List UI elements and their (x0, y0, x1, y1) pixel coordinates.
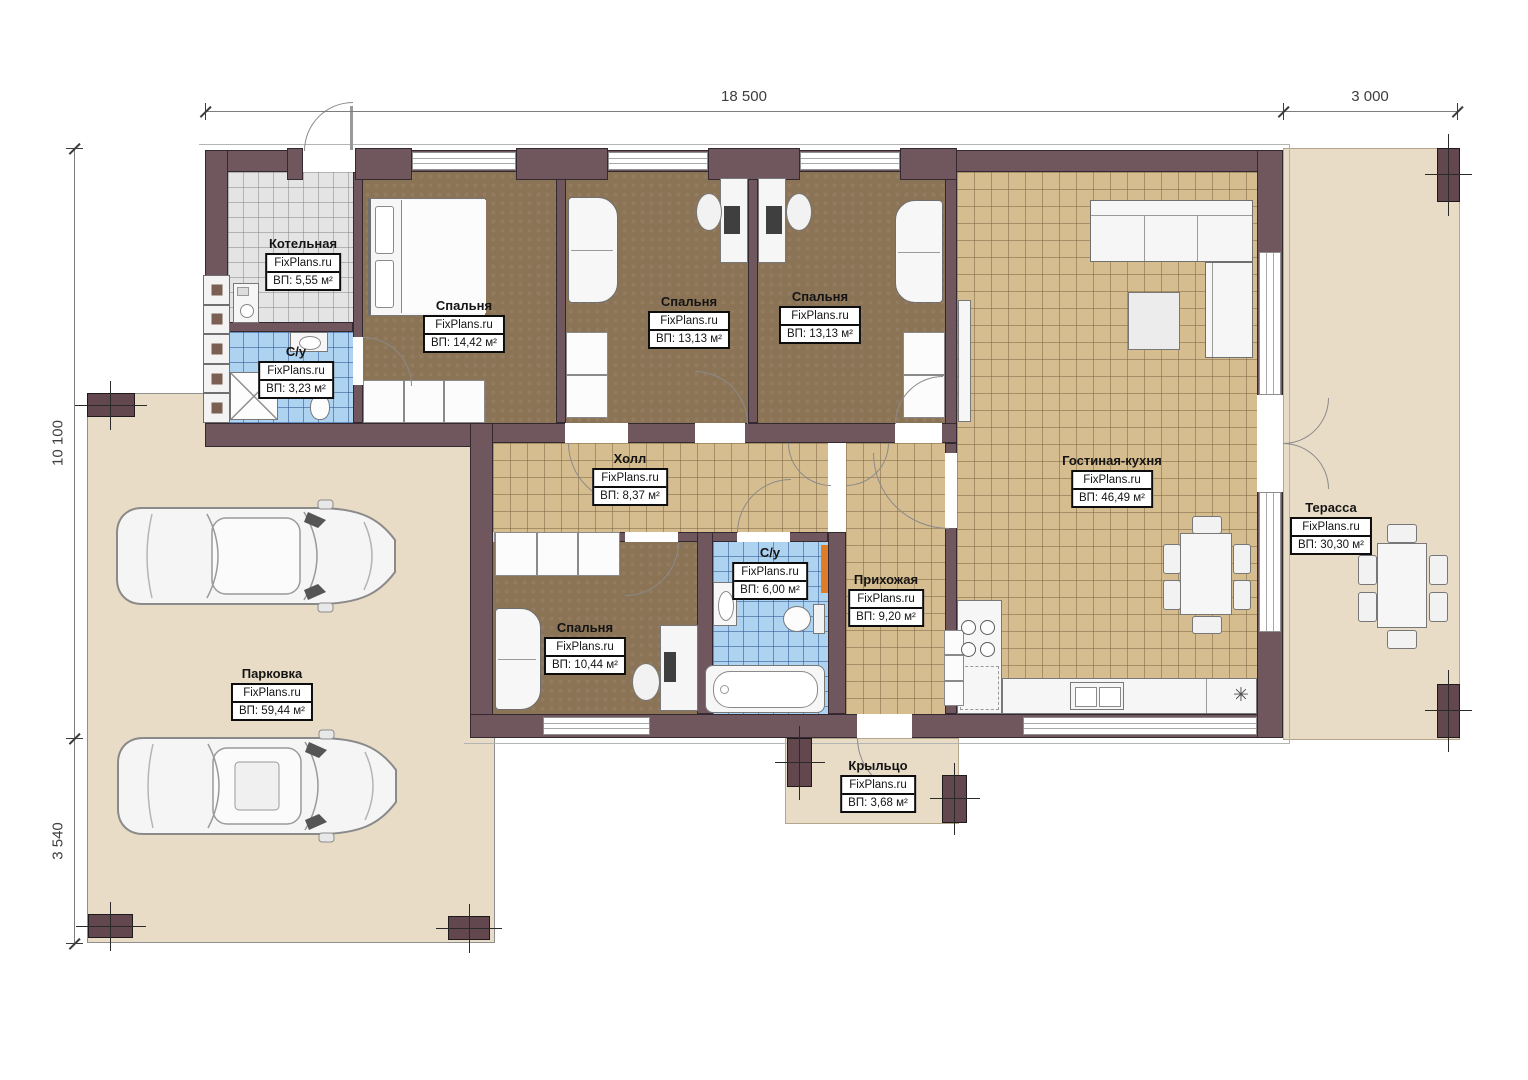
watermark: FixPlans.ru (233, 685, 311, 703)
watermark: FixPlans.ru (1073, 472, 1151, 490)
room-area: ВП: 5,55 м² (267, 273, 339, 289)
room-area: ВП: 13,13 м² (650, 331, 728, 347)
terrace-chair (1429, 555, 1448, 585)
column-axis (799, 726, 800, 800)
wardrobe-hall (495, 532, 620, 576)
room-name: Спальня (544, 620, 626, 635)
dining-chair (1233, 544, 1251, 574)
column-axis (1425, 174, 1472, 175)
kitchen-counter-horizontal (1002, 678, 1257, 714)
sofa-bedroom3 (895, 200, 943, 303)
window-living-upper (1259, 252, 1281, 395)
room-label-bedroom2: Спальня FixPlans.ru ВП: 13,13 м² (648, 294, 730, 349)
room-area: ВП: 3,68 м² (842, 795, 914, 811)
room-area: ВП: 30,30 м² (1292, 537, 1370, 553)
room-label-box: FixPlans.ru ВП: 10,44 м² (544, 637, 626, 675)
column-axis (1425, 710, 1472, 711)
bathroom-main-door-opening (737, 532, 790, 542)
room-label-bedroom1: Спальня FixPlans.ru ВП: 14,42 м² (423, 298, 505, 353)
computer-bedroom2 (724, 206, 740, 234)
room-label-porch: Крыльцо FixPlans.ru ВП: 3,68 м² (840, 758, 916, 813)
wall-pier-5 (900, 148, 957, 180)
dining-chair (1163, 580, 1181, 610)
dimension-line-left (74, 148, 75, 944)
terrace-area (1283, 148, 1460, 740)
chair-bedroom3 (786, 193, 812, 231)
wall-pier-1 (287, 148, 303, 180)
sofa-living-chaise (1205, 262, 1253, 358)
wall-bedroom3-living (945, 172, 957, 443)
wall-pier-4 (708, 148, 800, 180)
wall-exterior-mid-left (470, 423, 493, 738)
computer-bedroom3 (766, 206, 782, 234)
wall-exterior-left-section-bottom (205, 423, 493, 447)
left-wall-niches (203, 275, 230, 423)
watermark: FixPlans.ru (734, 564, 806, 582)
room-label-su-main: С/у FixPlans.ru ВП: 6,00 м² (732, 545, 808, 600)
dining-chair (1192, 516, 1222, 534)
watermark: FixPlans.ru (1292, 519, 1370, 537)
terrace-chair (1387, 630, 1417, 649)
dimension-line-top (205, 111, 1458, 112)
cooktop-icon: ✳ (1228, 684, 1254, 710)
tv-unit (958, 300, 971, 422)
room-label-living-kitchen: Гостиная-кухня FixPlans.ru ВП: 46,49 м² (1062, 453, 1162, 508)
terrace-chair (1387, 524, 1417, 543)
entry-door-arc (304, 102, 353, 151)
watermark: FixPlans.ru (267, 255, 339, 273)
wardrobe-bedroom2 (566, 332, 608, 418)
terrace-door-opening (1257, 395, 1283, 492)
chair-bedroom2 (696, 193, 722, 231)
watermark: FixPlans.ru (781, 308, 859, 326)
wall-pier-3 (516, 148, 608, 180)
kitchen-sink (1070, 682, 1124, 710)
terrace-chair (1429, 592, 1448, 622)
coffee-table (1128, 292, 1180, 350)
watermark: FixPlans.ru (850, 591, 922, 609)
watermark: FixPlans.ru (260, 363, 332, 381)
window-living-lower (1259, 492, 1281, 632)
room-label-box: FixPlans.ru ВП: 8,37 м² (592, 468, 668, 506)
room-label-box: FixPlans.ru ВП: 59,44 м² (231, 683, 313, 721)
wardrobe-bedroom1 (363, 380, 485, 423)
room-area: ВП: 46,49 м² (1073, 490, 1151, 506)
bathtub (705, 665, 825, 713)
room-label-box: FixPlans.ru ВП: 9,20 м² (848, 589, 924, 627)
room-area: ВП: 6,00 м² (734, 582, 806, 598)
room-label-box: FixPlans.ru ВП: 3,68 м² (840, 775, 916, 813)
chair-bedroom4 (632, 663, 660, 701)
wall-bedroom2-bedroom3 (748, 172, 758, 423)
wall-bathroom-hallway (828, 532, 846, 714)
room-name: С/у (258, 344, 334, 359)
room-label-bedroom3: Спальня FixPlans.ru ВП: 13,13 м² (779, 289, 861, 344)
dimension-top-right: 3 000 (1320, 88, 1420, 105)
room-label-box: FixPlans.ru ВП: 6,00 м² (732, 562, 808, 600)
computer-bedroom4 (664, 652, 676, 682)
bedroom1-door-opening (565, 423, 628, 443)
front-door-opening (857, 714, 912, 738)
wall-bedroom1-bedroom2 (556, 172, 566, 423)
window-kitchen (1023, 717, 1257, 735)
entry-door-opening (303, 150, 355, 172)
terrace-chair (1358, 592, 1377, 622)
room-name: Спальня (779, 289, 861, 304)
room-name: Терасса (1290, 500, 1372, 515)
room-label-bedroom4: Спальня FixPlans.ru ВП: 10,44 м² (544, 620, 626, 675)
room-label-box: FixPlans.ru ВП: 5,55 м² (265, 253, 341, 291)
dining-chair (1163, 544, 1181, 574)
room-label-terrace: Терасса FixPlans.ru ВП: 30,30 м² (1290, 500, 1372, 555)
sofa-bedroom4 (495, 608, 541, 710)
dining-chair (1233, 580, 1251, 610)
window-bedroom4 (543, 717, 650, 735)
room-name: Холл (592, 451, 668, 466)
bedroom2-door-opening (695, 423, 745, 443)
window-bedroom1 (412, 152, 516, 170)
column-axis (930, 798, 980, 799)
room-name: Парковка (231, 666, 313, 681)
car-top (112, 498, 412, 614)
dimension-left-lower: 3 540 (50, 822, 67, 860)
column-axis (1448, 670, 1449, 752)
floor-plan: ✳ (0, 0, 1528, 1080)
window-bedroom2 (608, 152, 708, 170)
room-name: С/у (732, 545, 808, 560)
room-name: Прихожая (848, 572, 924, 587)
column-axis (775, 762, 825, 763)
room-name: Гостиная-кухня (1062, 453, 1162, 468)
window-bedroom3 (800, 152, 900, 170)
room-area: ВП: 14,42 м² (425, 335, 503, 351)
dining-chair (1192, 616, 1222, 634)
car-top (113, 728, 413, 844)
room-name: Спальня (423, 298, 505, 313)
facade-line-top (199, 144, 1289, 145)
bathroom-small-door-opening (353, 337, 363, 385)
room-label-box: FixPlans.ru ВП: 3,23 м² (258, 361, 334, 399)
column-axis (75, 405, 147, 406)
terrace-chair (1358, 555, 1377, 585)
room-label-box: FixPlans.ru ВП: 14,42 м² (423, 315, 505, 353)
dining-table-living (1180, 533, 1232, 615)
bedroom3-door-opening (895, 423, 942, 443)
dimension-left-main: 10 100 (50, 420, 67, 466)
room-area: ВП: 10,44 м² (546, 657, 624, 673)
boiler-unit (233, 283, 259, 323)
watermark: FixPlans.ru (842, 777, 914, 795)
room-area: ВП: 59,44 м² (233, 703, 311, 719)
towel-rail (821, 545, 828, 593)
room-label-hallway: Прихожая FixPlans.ru ВП: 9,20 м² (848, 572, 924, 627)
room-name: Котельная (265, 236, 341, 251)
room-name: Спальня (648, 294, 730, 309)
room-label-hall: Холл FixPlans.ru ВП: 8,37 м² (592, 451, 668, 506)
room-label-box: FixPlans.ru ВП: 13,13 м² (779, 306, 861, 344)
watermark: FixPlans.ru (546, 639, 624, 657)
toilet-main-bathroom (783, 602, 825, 636)
column-axis (954, 763, 955, 835)
wall-boiler-bath-divider (228, 322, 353, 332)
room-area: ВП: 9,20 м² (850, 609, 922, 625)
room-name: Крыльцо (840, 758, 916, 773)
sofa-bedroom2 (568, 197, 618, 303)
bedroom4-door-opening (625, 532, 678, 542)
column-axis (436, 928, 502, 929)
room-label-su-small: С/у FixPlans.ru ВП: 3,23 м² (258, 344, 334, 399)
watermark: FixPlans.ru (650, 313, 728, 331)
room-label-box: FixPlans.ru ВП: 30,30 м² (1290, 517, 1372, 555)
room-label-parking: Парковка FixPlans.ru ВП: 59,44 м² (231, 666, 313, 721)
watermark: FixPlans.ru (594, 470, 666, 488)
wall-boiler-bedroom1 (353, 172, 363, 423)
dimension-top-main: 18 500 (644, 88, 844, 105)
room-label-kotelnaya: Котельная FixPlans.ru ВП: 5,55 м² (265, 236, 341, 291)
room-area: ВП: 13,13 м² (781, 326, 859, 342)
room-area: ВП: 8,37 м² (594, 488, 666, 504)
room-label-box: FixPlans.ru ВП: 46,49 м² (1071, 470, 1153, 508)
stove (959, 618, 1001, 662)
wall-pier-2 (355, 148, 412, 180)
terrace-table (1377, 543, 1427, 628)
watermark: FixPlans.ru (425, 317, 503, 335)
column-axis (1448, 134, 1449, 216)
sofa-living-main (1090, 200, 1253, 262)
column-axis (76, 926, 146, 927)
room-label-box: FixPlans.ru ВП: 13,13 м² (648, 311, 730, 349)
dishwasher-outline (960, 666, 999, 710)
room-area: ВП: 3,23 м² (260, 381, 332, 397)
